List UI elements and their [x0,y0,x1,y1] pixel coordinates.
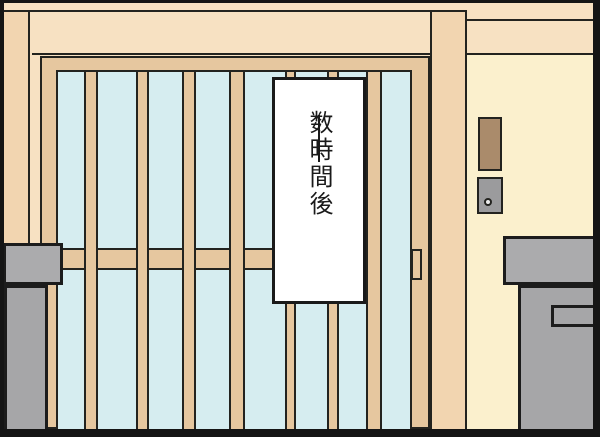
left-wall-body [4,285,48,437]
glass-muntin-1 [84,72,98,429]
wall-trim-line-right [467,19,593,21]
caption-dash-line [318,115,320,162]
wall-trim-line-left [4,10,467,12]
intercom-unit [477,177,503,214]
door-center-stile [229,72,245,429]
glass-muntin-2 [136,72,149,429]
door-handle[interactable] [411,249,422,280]
lintel-bottom-line [32,53,430,55]
mailbox-cap [503,236,600,285]
comic-panel: 数時間後 [0,0,600,437]
right-pillar [430,12,467,429]
left-wall-cap [3,243,63,285]
name-plate [478,117,502,171]
caption-banner: 数時間後 [272,77,366,304]
mailbox-slot[interactable] [551,305,600,327]
intercom-button[interactable] [484,198,492,206]
door-right-stile [366,72,382,429]
glass-muntin-3 [182,72,196,429]
